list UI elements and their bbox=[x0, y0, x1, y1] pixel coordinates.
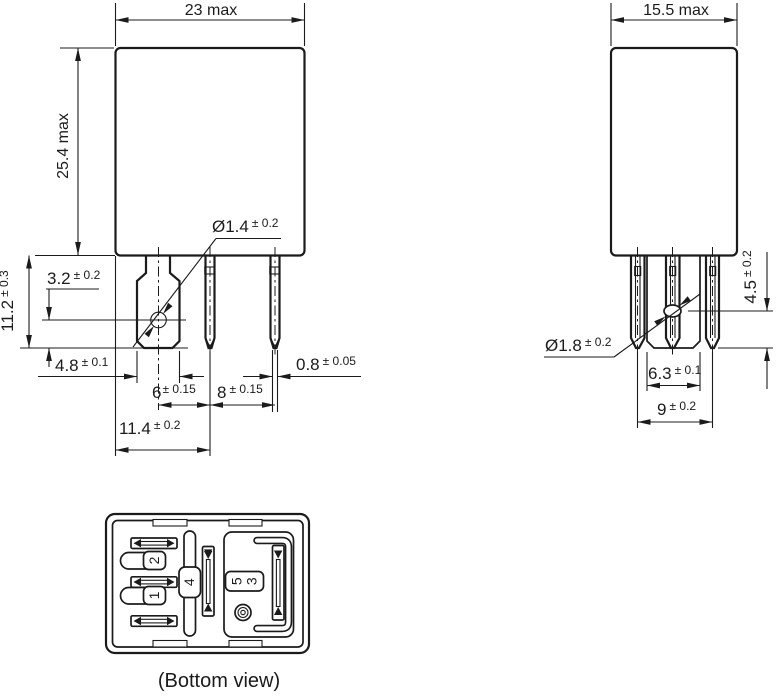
front-dim-pitches: 6± 0.15 8± 0.15 bbox=[152, 382, 275, 408]
front-pin-length-label: 11.2± 0.3 bbox=[0, 270, 17, 332]
side-blade-terminal bbox=[647, 256, 700, 348]
front-height-label: 25.4 max bbox=[55, 113, 72, 179]
side-blade-width-label: 6.3± 0.1 bbox=[648, 363, 702, 383]
side-dim-width: 15.5 max bbox=[611, 2, 737, 46]
bottom-pin2-label: 2 bbox=[146, 556, 162, 564]
bottom-view: 2 1 4 5 bbox=[106, 514, 309, 692]
front-dim-blade-width: 4.8± 0.1 bbox=[38, 351, 204, 383]
side-width-label: 15.5 max bbox=[643, 2, 709, 19]
drawing-canvas: 23 max 25.4 max 11.2± 0.3 3.2 bbox=[0, 0, 780, 699]
bottom-blade-slot-top bbox=[131, 538, 177, 549]
bottom-pin1-pocket: 1 bbox=[121, 587, 166, 605]
bottom-pin3-label: 3 bbox=[244, 577, 260, 585]
bottom-vertical-slot-left bbox=[203, 547, 215, 617]
bottom-pin4-pocket: 4 bbox=[179, 531, 201, 636]
side-blade-hole bbox=[664, 305, 681, 317]
front-width-label: 23 max bbox=[185, 2, 237, 19]
front-dim-hole-offset: 3.2± 0.2 bbox=[42, 268, 186, 367]
side-hole-dia-label: Ø1.8± 0.2 bbox=[545, 335, 612, 355]
bottom-pin2-pocket: 2 bbox=[121, 552, 166, 570]
front-pitch8-label: 8± 0.15 bbox=[217, 382, 263, 402]
front-edge-to-pin-label: 11.4± 0.2 bbox=[119, 418, 181, 438]
front-dim-pin-thickness: 0.8± 0.05 bbox=[243, 350, 361, 412]
front-pin-thickness-label: 0.8± 0.05 bbox=[296, 354, 356, 374]
relay-dimension-drawing: 23 max 25.4 max 11.2± 0.3 3.2 bbox=[0, 0, 780, 699]
bottom-blade-slot-bottom bbox=[131, 616, 177, 627]
bottom-right-region: 5 3 bbox=[224, 532, 294, 637]
side-pitch-label: 9± 0.2 bbox=[657, 399, 696, 419]
bottom-vertical-slot-right bbox=[273, 546, 285, 621]
front-dim-width: 23 max bbox=[116, 2, 305, 46]
bottom-pilot-circle bbox=[235, 605, 251, 621]
bottom-view-caption: (Bottom view) bbox=[158, 670, 280, 692]
side-hole-offset-label: 4.5± 0.2 bbox=[740, 250, 760, 304]
front-dim-edge-to-pin: 11.4± 0.2 bbox=[116, 256, 211, 456]
bottom-pin4-label: 4 bbox=[181, 578, 197, 586]
side-dim-blade-width: 6.3± 0.1 bbox=[647, 352, 702, 391]
front-hole-offset-label: 3.2± 0.2 bbox=[47, 268, 101, 288]
front-view: 23 max 25.4 max 11.2± 0.3 3.2 bbox=[0, 2, 361, 456]
bottom-pin5-label: 5 bbox=[229, 577, 245, 585]
side-view: 15.5 max Ø1.8± 0.2 4.5± 0.2 6 bbox=[544, 2, 773, 428]
front-dim-height: 25.4 max bbox=[55, 48, 114, 255]
front-blade-width-label: 4.8± 0.1 bbox=[55, 355, 109, 375]
front-hole-dia-label: Ø1.4± 0.2 bbox=[212, 216, 279, 236]
side-body-outline bbox=[611, 48, 737, 256]
front-pitch6-label: 6± 0.15 bbox=[152, 382, 196, 402]
bottom-pin1-label: 1 bbox=[146, 591, 162, 599]
